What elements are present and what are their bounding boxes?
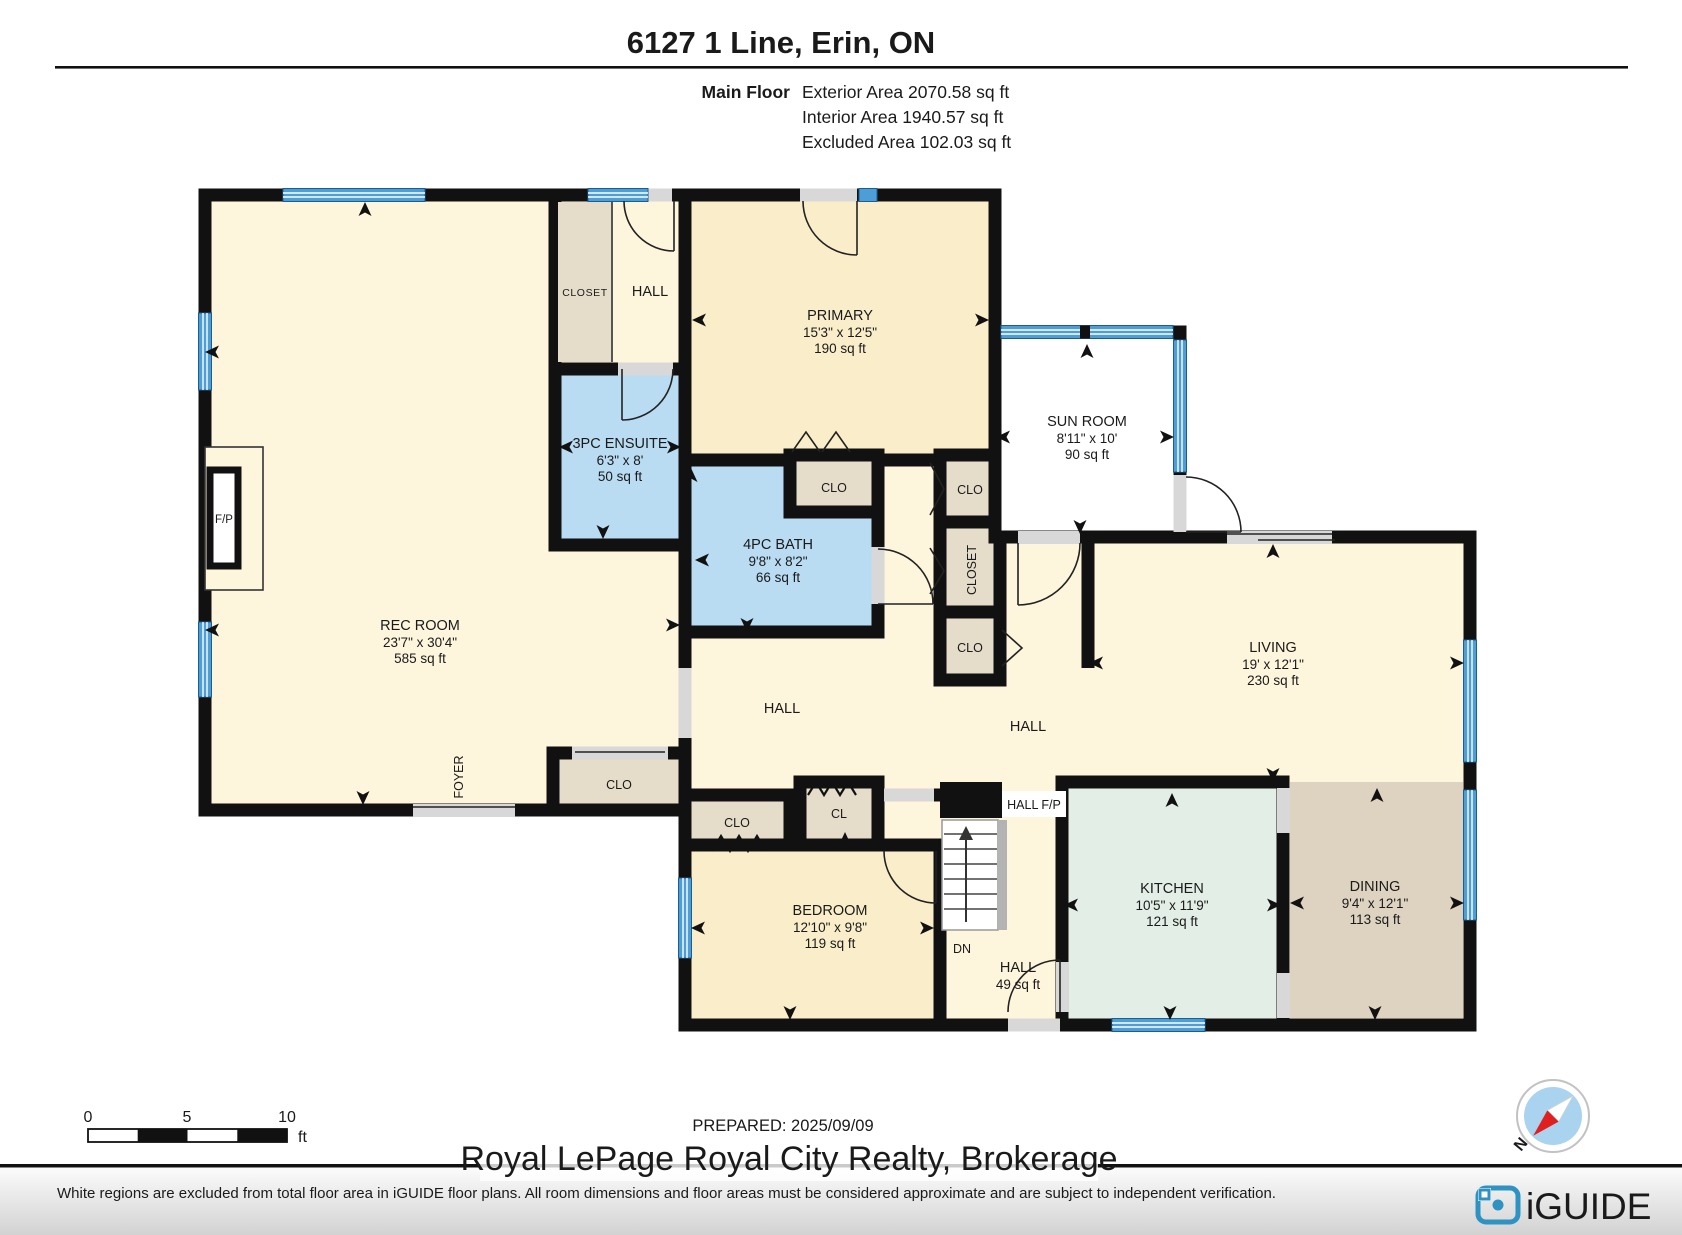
label-clo-foyer: CLO xyxy=(606,778,632,792)
room-living-area: 230 sq ft xyxy=(1247,673,1299,688)
compass-icon: N xyxy=(1511,1080,1589,1155)
floorplan-page: 6127 1 Line, Erin, ON Main Floor Exterio… xyxy=(0,0,1682,1235)
label-fireplace: F/P xyxy=(215,514,233,526)
room-bedroom-shape xyxy=(685,845,940,1025)
label-clo-primary: CLO xyxy=(821,481,847,495)
page-title: 6127 1 Line, Erin, ON xyxy=(627,25,935,60)
window-post xyxy=(1080,326,1090,339)
header-divider xyxy=(55,66,1628,69)
label-hall-fireplace: HALL F/P xyxy=(1007,798,1061,812)
scale-tick-5: 5 xyxy=(183,1109,192,1126)
label-clo-lower: CLO xyxy=(957,641,983,655)
room-sunroom-name: SUN ROOM xyxy=(1047,414,1127,430)
room-primary-name: PRIMARY xyxy=(807,308,873,324)
disclaimer-text: White regions are excluded from total fl… xyxy=(57,1185,1276,1202)
room-primary-dims: 15'3" x 12'5" xyxy=(803,325,877,340)
room-hall-lower-name: HALL xyxy=(1000,960,1036,976)
watermark: Royal LePage Royal City Realty, Brokerag… xyxy=(460,1137,1117,1181)
label-cl-bedroom: CL xyxy=(831,807,847,821)
label-hall-right: HALL xyxy=(1010,719,1046,735)
room-ensuite-dims: 6'3" x 8' xyxy=(597,453,644,468)
room-bath-dims: 9'8" x 8'2" xyxy=(748,554,807,569)
room-dining-dims: 9'4" x 12'1" xyxy=(1342,896,1409,911)
staircase xyxy=(940,782,1007,930)
room-living-dims: 19' x 12'1" xyxy=(1242,657,1304,672)
room-bath-area: 66 sq ft xyxy=(756,570,801,585)
room-ensuite-name: 3PC ENSUITE xyxy=(572,436,667,452)
room-living-name: LIVING xyxy=(1249,640,1297,656)
fireplace xyxy=(205,447,263,590)
label-foyer: FOYER xyxy=(452,755,466,798)
prepared-date: PREPARED: 2025/09/09 xyxy=(692,1117,873,1135)
room-sunroom-dims: 8'11" x 10' xyxy=(1057,431,1118,446)
watermark-text: Royal LePage Royal City Realty, Brokerag… xyxy=(460,1140,1117,1178)
header: 6127 1 Line, Erin, ON Main Floor Exterio… xyxy=(55,25,1628,152)
room-rec-area: 585 sq ft xyxy=(394,651,446,666)
brand-name: iGUIDE xyxy=(1526,1186,1651,1227)
room-kitchen-name: KITCHEN xyxy=(1140,881,1204,897)
room-closet-hall-top xyxy=(555,195,685,369)
exterior-area: Exterior Area 2070.58 sq ft xyxy=(802,82,1009,102)
room-sunroom-area: 90 sq ft xyxy=(1065,447,1110,462)
room-dining-name: DINING xyxy=(1350,879,1401,895)
room-bedroom-name: BEDROOM xyxy=(793,903,868,919)
scale-bar: 0 5 10 ft xyxy=(84,1109,308,1146)
floor-plan: REC ROOM 23'7" x 30'4" 585 sq ft PRIMARY… xyxy=(199,189,1477,1032)
scale-unit: ft xyxy=(298,1129,307,1146)
label-hall-top: HALL xyxy=(632,284,668,300)
room-ensuite-area: 50 sq ft xyxy=(598,469,643,484)
room-bedroom-dims: 12'10" x 9'8" xyxy=(793,920,867,935)
excluded-area: Excluded Area 102.03 sq ft xyxy=(802,132,1011,152)
room-rec-dims: 23'7" x 30'4" xyxy=(383,635,457,650)
room-kitchen-dims: 10'5" x 11'9" xyxy=(1135,898,1208,913)
floorplan-image: 6127 1 Line, Erin, ON Main Floor Exterio… xyxy=(0,0,1682,1235)
room-bedroom-area: 119 sq ft xyxy=(805,936,856,951)
floor-label: Main Floor xyxy=(702,82,791,102)
label-hall-mid: HALL xyxy=(764,701,800,717)
label-stairs-down: DN xyxy=(953,942,971,956)
room-primary-area: 190 sq ft xyxy=(814,341,866,356)
room-kitchen-area: 121 sq ft xyxy=(1146,914,1198,929)
interior-area: Interior Area 1940.57 sq ft xyxy=(802,107,1004,127)
label-closet-top: CLOSET xyxy=(562,287,608,299)
room-bath-name: 4PC BATH xyxy=(743,537,813,553)
room-dining-area: 113 sq ft xyxy=(1350,912,1401,927)
label-clo-upper: CLO xyxy=(957,483,983,497)
room-hall-lower-area: 49 sq ft xyxy=(996,977,1041,992)
scale-tick-0: 0 xyxy=(84,1109,93,1126)
room-rec-name: REC ROOM xyxy=(380,618,460,634)
label-clo-bedroom: CLO xyxy=(724,816,750,830)
label-closet-vertical: CLOSET xyxy=(965,545,979,595)
scale-tick-10: 10 xyxy=(278,1109,296,1126)
